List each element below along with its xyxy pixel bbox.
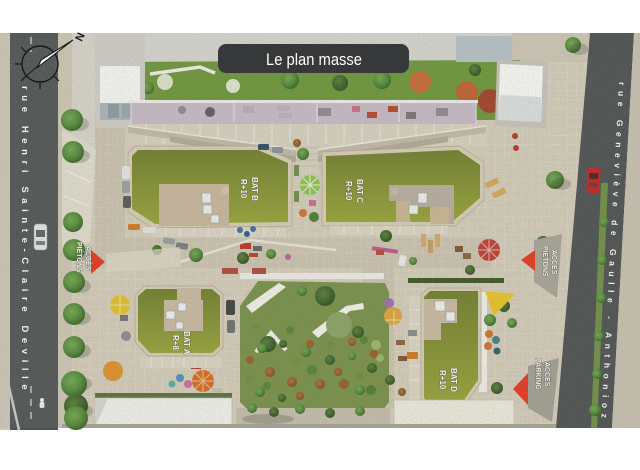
svg-text:Le plan masse: Le plan masse bbox=[266, 50, 362, 69]
